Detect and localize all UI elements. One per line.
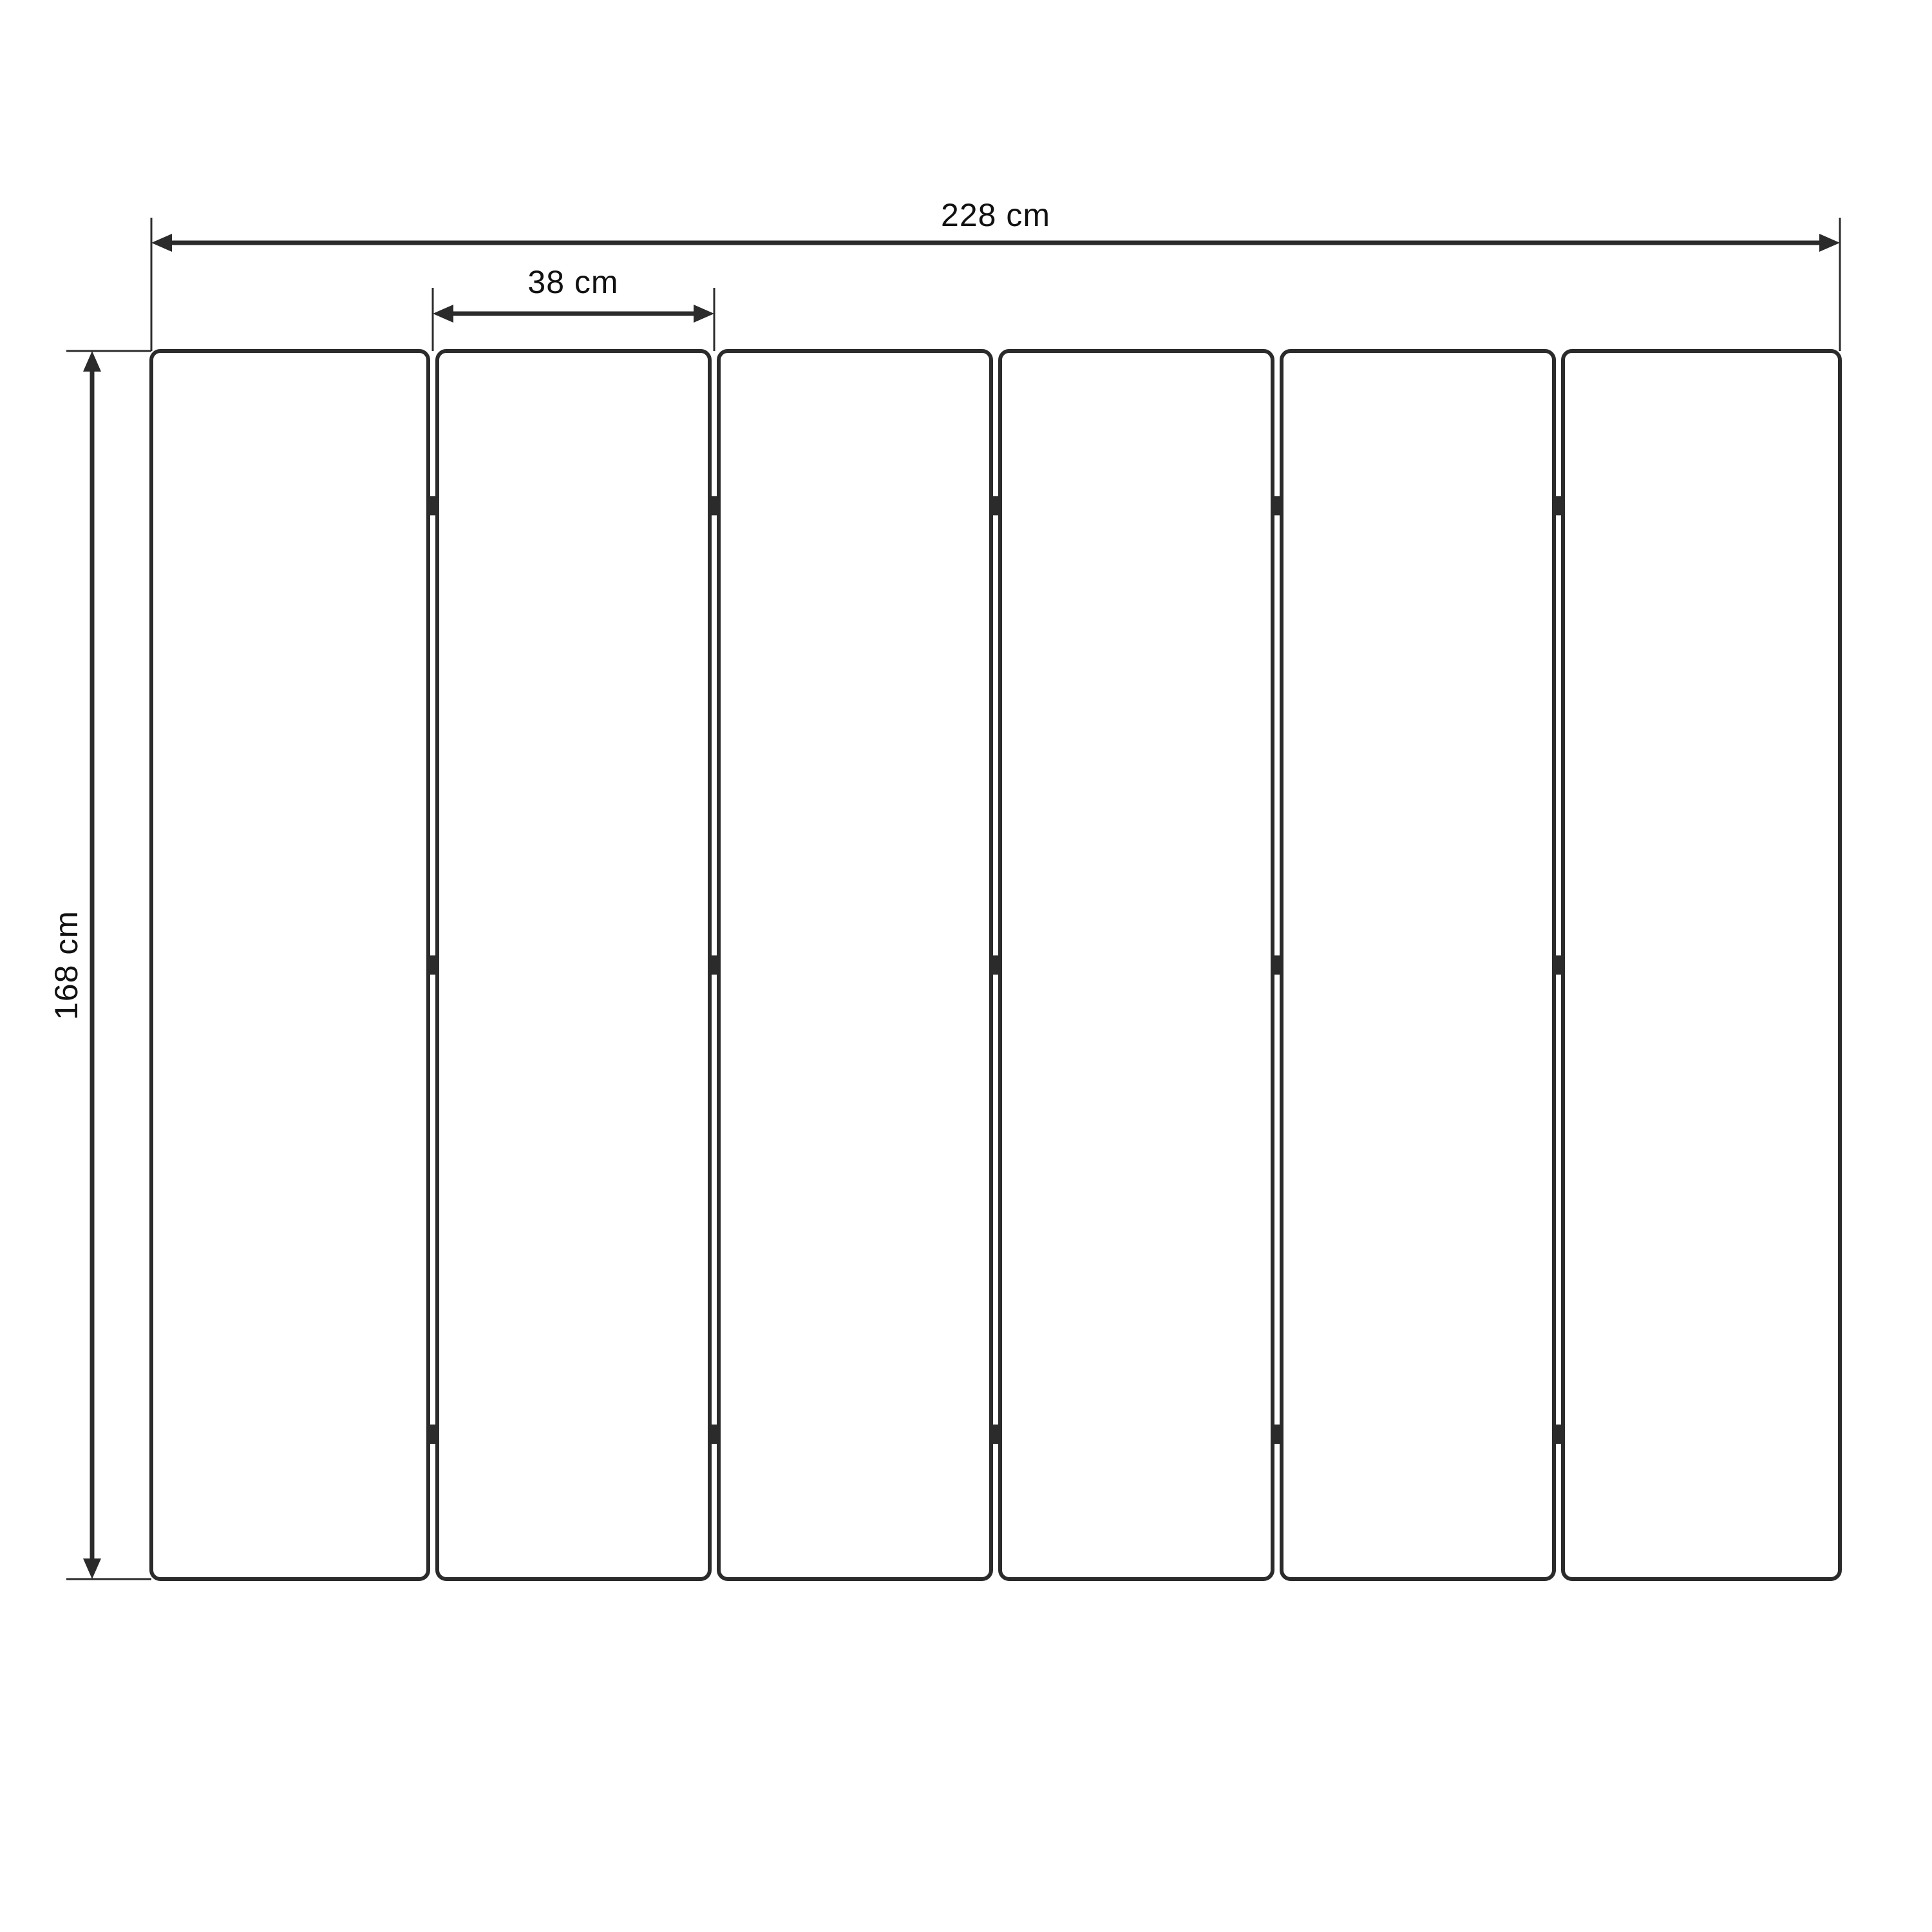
arrow-right-icon [694,305,714,323]
panel [437,351,710,1579]
panel [1563,351,1840,1579]
hinge-mark [991,956,1000,975]
hinge-mark [1554,496,1563,515]
hinge-mark [1554,956,1563,975]
arrow-down-icon [83,1558,101,1579]
hinge-mark [428,496,437,515]
dimension-height: 168 cm [48,351,151,1579]
hinge-mark [1273,956,1282,975]
dimension-panel-width: 38 cm [433,264,714,351]
dimension-total-width: 228 cm [151,197,1840,351]
panel-width-label: 38 cm [527,264,618,300]
arrow-left-icon [151,234,172,252]
hinge-mark [710,956,719,975]
hinge-mark [710,1425,719,1444]
hinge-mark [1273,1425,1282,1444]
hinge-mark [428,956,437,975]
arrow-right-icon [1819,234,1840,252]
height-label: 168 cm [48,911,84,1020]
panel [719,351,991,1579]
panel [1282,351,1554,1579]
hinge-mark [991,496,1000,515]
hinge-mark [428,1425,437,1444]
arrow-up-icon [83,351,101,372]
blueprint-canvas: 228 cm 38 cm 168 cm [0,0,1932,1932]
panel [151,351,428,1579]
panel-screen-diagram: 228 cm 38 cm 168 cm [0,0,1932,1932]
panel [1000,351,1273,1579]
hinge-mark [1554,1425,1563,1444]
hinge-mark [1273,496,1282,515]
panels-layer [151,351,1840,1579]
hinge-mark [710,496,719,515]
arrow-left-icon [433,305,453,323]
hinge-mark [991,1425,1000,1444]
total-width-label: 228 cm [941,197,1050,233]
